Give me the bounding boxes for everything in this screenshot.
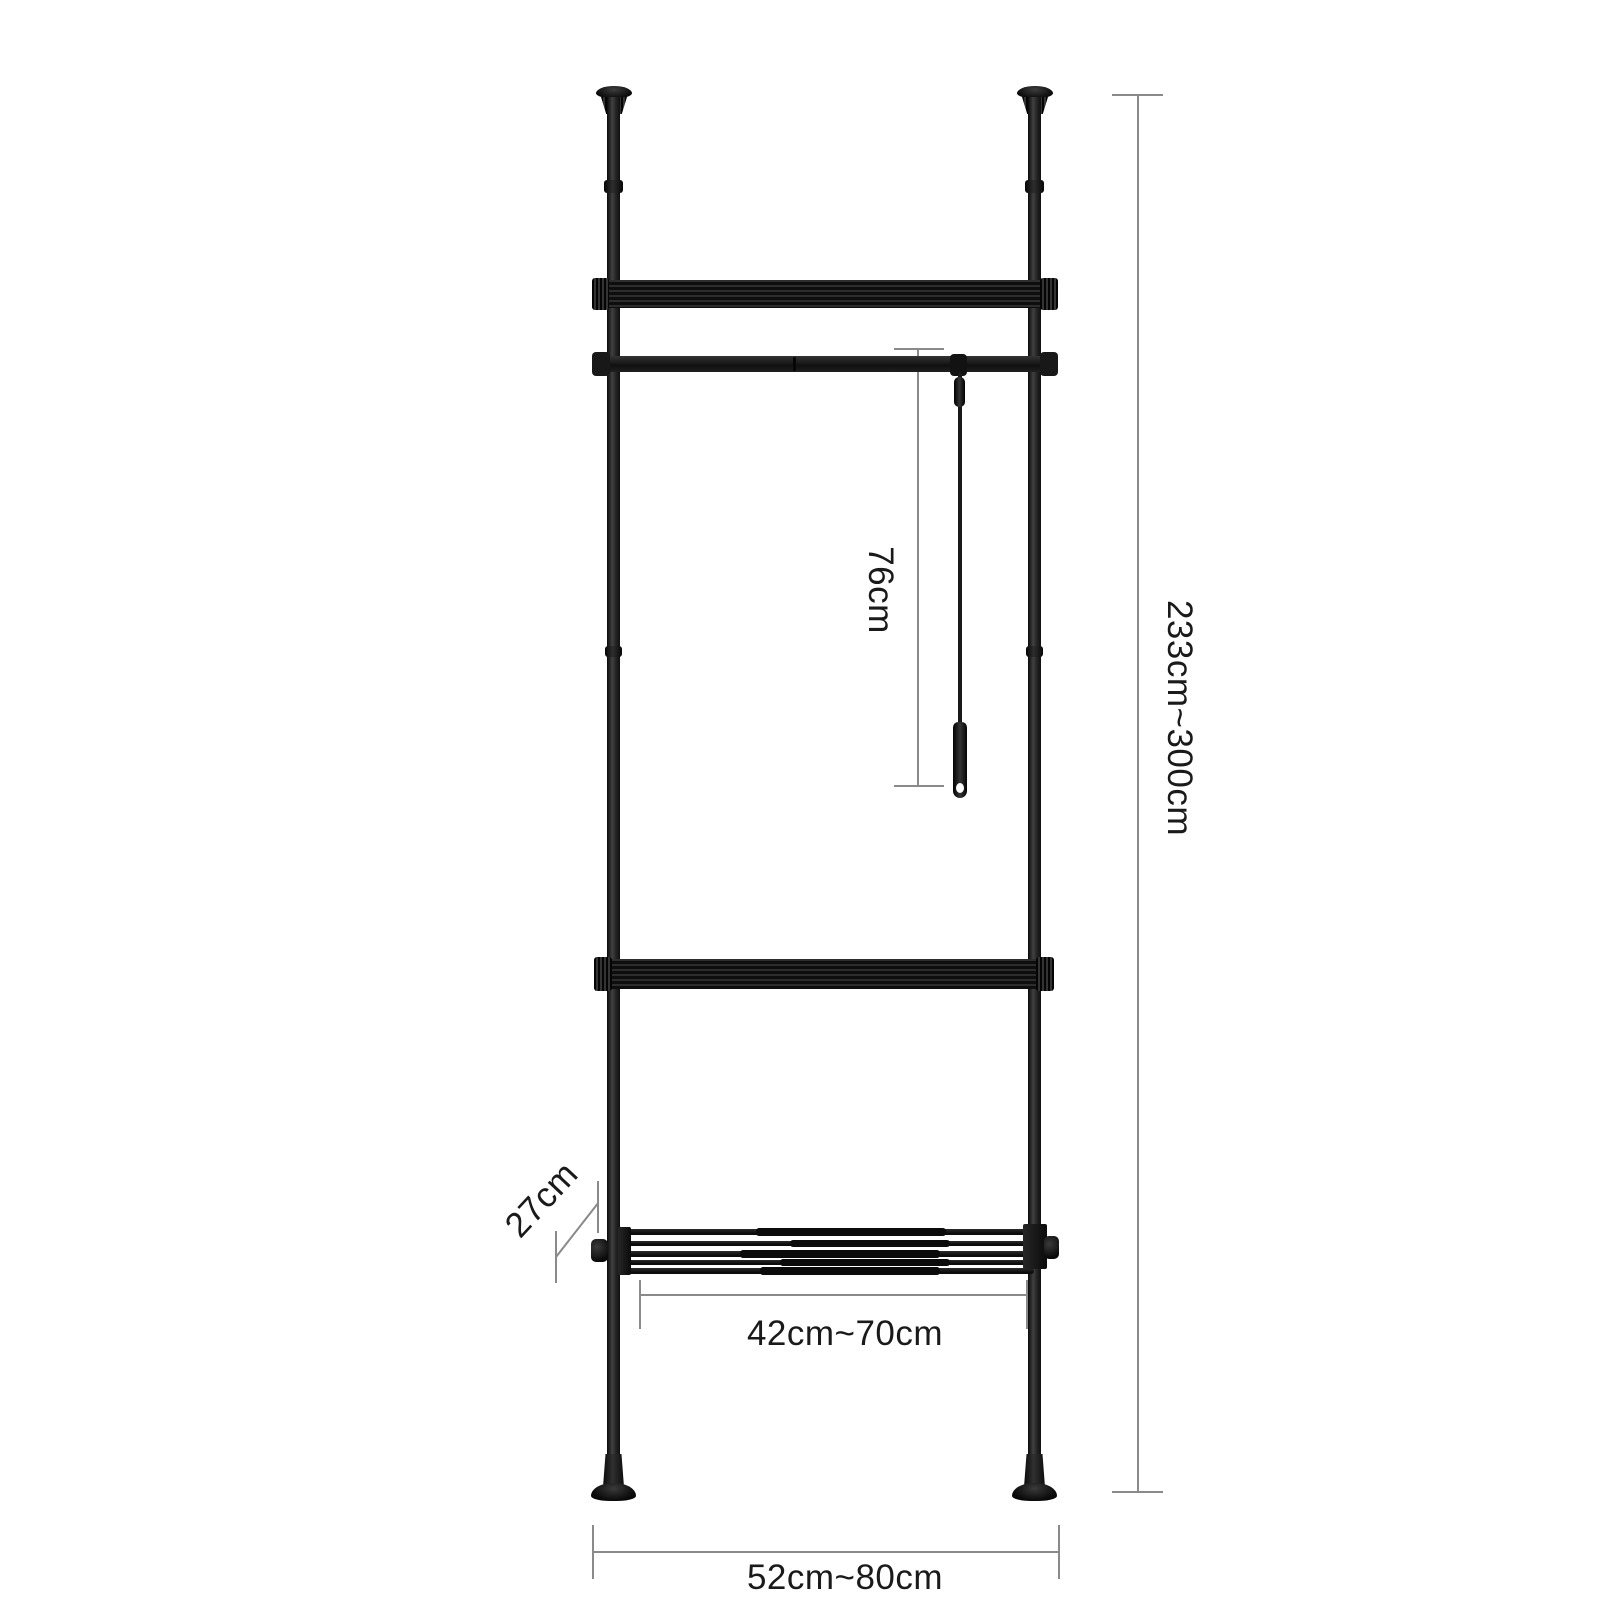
overall-height-label: 233cm~300cm (1159, 588, 1199, 848)
dim-rod-drop-cap-bottom (894, 785, 944, 787)
rod-drop-height-label: 76cm (860, 530, 900, 650)
hanging-rod (594, 356, 1056, 372)
dim-shelf-width-line (639, 1294, 1029, 1296)
shelf-width-label: 42cm~70cm (695, 1314, 995, 1354)
bottom-shelf-left-knob (591, 1239, 608, 1262)
dim-depth-tick-upper (597, 1181, 599, 1233)
bottom-shelf-rod-2-overlap (790, 1240, 950, 1247)
left-pole-collar-mid (605, 646, 622, 657)
middle-shelf-left-cap (594, 957, 612, 991)
hanging-rod-seam (793, 357, 796, 371)
strap-upper-grip (954, 377, 965, 407)
top-shelf (594, 280, 1057, 308)
top-shelf-left-cap (592, 278, 609, 310)
shelf-depth-label: 27cm (486, 1142, 597, 1257)
left-foot-base (591, 1483, 636, 1501)
dim-overall-height-cap-bottom (1112, 1491, 1163, 1493)
product-dimension-diagram: 76cm 233cm~300cm 27cm 42cm~70cm 52cm~80c… (0, 0, 1600, 1600)
dim-overall-height-cap-top (1112, 94, 1163, 96)
right-pole-collar-upper (1025, 180, 1044, 193)
dim-shelf-width-tick-left (639, 1280, 641, 1329)
strap-cord (958, 372, 962, 725)
dim-rod-drop-cap-top (894, 348, 944, 350)
bottom-shelf-left-bracket (618, 1227, 631, 1275)
dim-overall-width-tick-left (592, 1525, 594, 1579)
hanging-rod-right-cap (1040, 352, 1058, 376)
bottom-shelf-rod-3-overlap (740, 1250, 940, 1258)
top-shelf-right-cap (1040, 278, 1058, 310)
dim-overall-height-line (1137, 95, 1139, 1493)
dim-overall-width-tick-right (1058, 1525, 1060, 1579)
middle-shelf (596, 959, 1054, 989)
left-pole-collar-upper (604, 180, 623, 193)
overall-width-label: 52cm~80cm (695, 1558, 995, 1598)
bottom-shelf-right-knob (1044, 1236, 1059, 1259)
right-foot-base (1012, 1483, 1057, 1501)
dim-overall-width-line (592, 1551, 1060, 1553)
bottom-shelf-rod-4-overlap (780, 1259, 950, 1266)
hanging-rod-left-cap (592, 352, 610, 376)
right-pole-collar-mid (1026, 646, 1043, 657)
strap-handle-hole (956, 783, 964, 793)
dim-rod-drop-line (917, 349, 919, 787)
bottom-shelf-rod-5-overlap (760, 1267, 940, 1275)
middle-shelf-right-cap (1036, 957, 1054, 991)
bottom-shelf-rod-1-overlap (756, 1228, 946, 1236)
